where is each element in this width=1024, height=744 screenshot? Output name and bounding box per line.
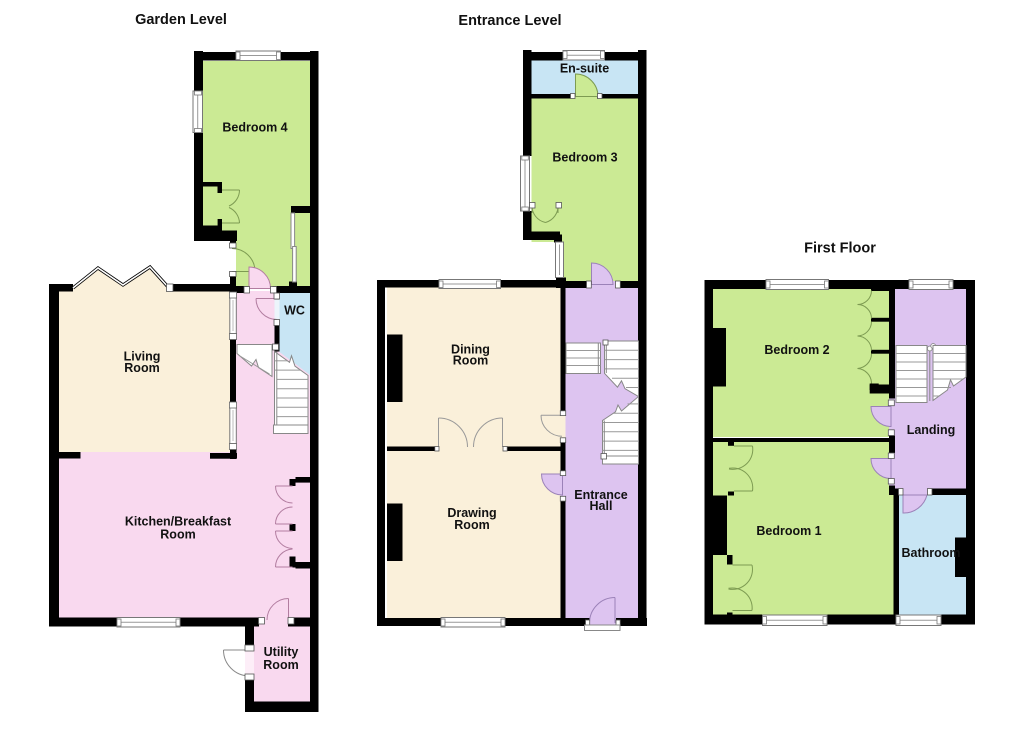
svg-text:Entrance Level: Entrance Level [458,13,561,29]
svg-text:Room: Room [453,354,488,368]
svg-text:Room: Room [263,658,298,672]
svg-text:Hall: Hall [590,499,613,513]
svg-text:Bedroom 3: Bedroom 3 [552,151,617,165]
svg-text:First Floor: First Floor [804,241,876,257]
svg-text:Garden Level: Garden Level [135,12,227,28]
svg-text:Bathroom: Bathroom [901,546,960,560]
svg-text:Room: Room [454,518,489,532]
svg-text:Kitchen/Breakfast: Kitchen/Breakfast [125,515,232,529]
svg-text:Bedroom 1: Bedroom 1 [756,524,821,538]
svg-text:Utility: Utility [264,645,299,659]
svg-text:Bedroom 2: Bedroom 2 [764,343,829,357]
svg-text:En-suite: En-suite [560,62,609,76]
svg-text:Bedroom 4: Bedroom 4 [222,121,287,135]
svg-text:Room: Room [160,528,195,542]
svg-text:WC: WC [284,304,305,318]
svg-text:Room: Room [124,361,159,375]
svg-text:Landing: Landing [907,423,956,437]
